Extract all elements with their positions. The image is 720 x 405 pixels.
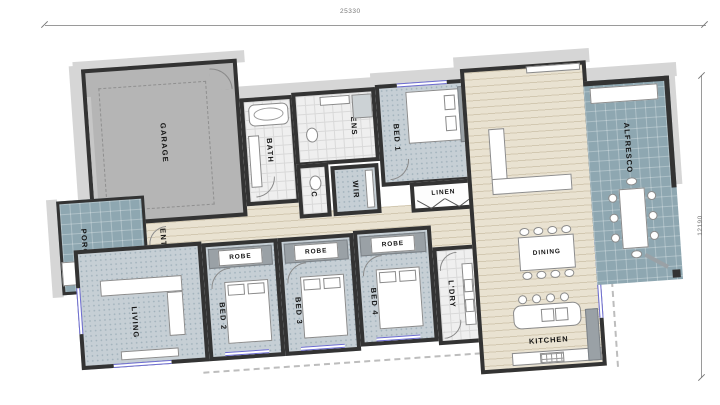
window-seat	[526, 63, 580, 74]
robe-door: ROBE	[294, 242, 339, 261]
outdoor-chair	[611, 233, 621, 243]
alfresco-label: ALFRESCO	[622, 122, 635, 173]
garage-roof-dashed-outline	[98, 81, 214, 212]
cooktop-icon	[540, 352, 565, 364]
top-dimension-label: 25330	[340, 8, 361, 15]
dining-chair	[550, 270, 561, 279]
stool-icon	[518, 295, 528, 305]
sofa-icon	[167, 291, 186, 336]
dining-chair	[522, 272, 533, 281]
bbq-bench-icon	[644, 253, 669, 269]
stool-icon	[532, 294, 542, 304]
stool-icon	[546, 293, 556, 303]
outdoor-table-icon	[619, 187, 649, 249]
garage-door-arc	[209, 67, 232, 90]
bathtub-icon	[248, 102, 289, 127]
bed2-robe-label: ROBE	[229, 253, 252, 262]
toilet-icon	[306, 127, 319, 143]
dimension-tick	[698, 374, 705, 381]
wir-label: WIR	[351, 180, 361, 199]
outdoor-chair	[608, 193, 618, 203]
bath-label: BATH	[265, 138, 276, 164]
bed1-door-arc	[389, 159, 410, 180]
washer-icon	[465, 299, 475, 313]
outdoor-sofa-icon	[589, 83, 658, 104]
room-living-front: LIVING	[74, 242, 210, 371]
linen-label: LINEN	[431, 189, 455, 198]
outdoor-chair	[647, 191, 657, 201]
dimension-tick	[701, 21, 708, 28]
bed3-robe-label: ROBE	[305, 247, 328, 256]
ensuite-vanity-icon	[319, 95, 350, 106]
outdoor-chair	[648, 211, 658, 221]
sink-icon	[541, 308, 555, 322]
laundry-tub-icon	[464, 279, 474, 293]
dining-chair	[519, 228, 530, 237]
tv-cabinet-icon	[121, 347, 179, 360]
laundry-door-arc	[443, 320, 462, 339]
room-alfresco: ALFRESCO	[583, 76, 683, 286]
room-wir: WIR	[330, 163, 381, 216]
dining-chair	[547, 226, 558, 235]
top-dimension-line	[45, 25, 706, 26]
window	[76, 288, 83, 334]
room-bed3: ROBE BED 3	[277, 233, 361, 356]
outdoor-chair	[631, 250, 643, 259]
garage-door	[87, 97, 99, 207]
floor-plan-canvas: 25330 12190 ENTRY GARAGE	[0, 0, 720, 405]
bath-door-arc	[255, 176, 276, 197]
pillow-icon	[444, 95, 456, 111]
outdoor-chair	[626, 177, 638, 186]
shower-icon	[351, 93, 373, 118]
toilet-icon	[309, 175, 322, 191]
room-bed2: ROBE BED 2	[201, 238, 285, 361]
bifold-door-icon	[417, 197, 474, 211]
post	[672, 269, 681, 278]
roof-dashed-line	[611, 281, 619, 367]
robe-door: ROBE	[218, 247, 263, 266]
dining-chair	[564, 269, 575, 278]
ensuite-label: ENS	[349, 116, 359, 136]
floor-plan: ENTRY GARAGE BATH ENS	[35, 24, 698, 405]
laundry-door-arc	[439, 252, 458, 271]
dining-table-icon: DINING	[518, 234, 576, 272]
right-dimension-label: 12190	[697, 215, 704, 236]
room-bed1: BED 1	[375, 79, 476, 187]
window	[301, 344, 345, 351]
room-wc: WC	[296, 163, 332, 219]
bed4-door-arc	[362, 255, 383, 276]
laundry-label: L'DRY	[447, 280, 458, 308]
wardrobe-shelf-icon	[365, 169, 376, 207]
dining-label: DINING	[533, 248, 562, 257]
dining-chair	[561, 225, 572, 234]
sink-icon	[555, 307, 569, 321]
bathtub-basin	[253, 107, 284, 122]
kitchen-label: KITCHEN	[529, 334, 569, 346]
robe-door: ROBE	[370, 235, 415, 254]
stool-icon	[560, 292, 570, 302]
pillow-icon	[247, 282, 265, 294]
window	[114, 360, 172, 368]
pillow-icon	[445, 115, 457, 131]
bed3-door-arc	[286, 262, 307, 283]
room-bed4: ROBE BED 4	[353, 226, 439, 347]
dining-chair	[533, 227, 544, 236]
bed1-label: BED 1	[392, 123, 403, 152]
window	[376, 334, 420, 341]
outdoor-chair	[650, 231, 660, 241]
pillow-icon	[399, 270, 417, 282]
window	[225, 349, 269, 356]
dining-chair	[536, 271, 547, 280]
pillow-icon	[323, 277, 341, 289]
outdoor-chair	[609, 213, 619, 223]
bed4-robe-label: ROBE	[381, 240, 404, 249]
bed2-door-arc	[210, 268, 231, 289]
living-front-label: LIVING	[130, 306, 141, 339]
entry-door-arc	[148, 226, 167, 245]
room-ensuite: ENS	[291, 87, 380, 167]
